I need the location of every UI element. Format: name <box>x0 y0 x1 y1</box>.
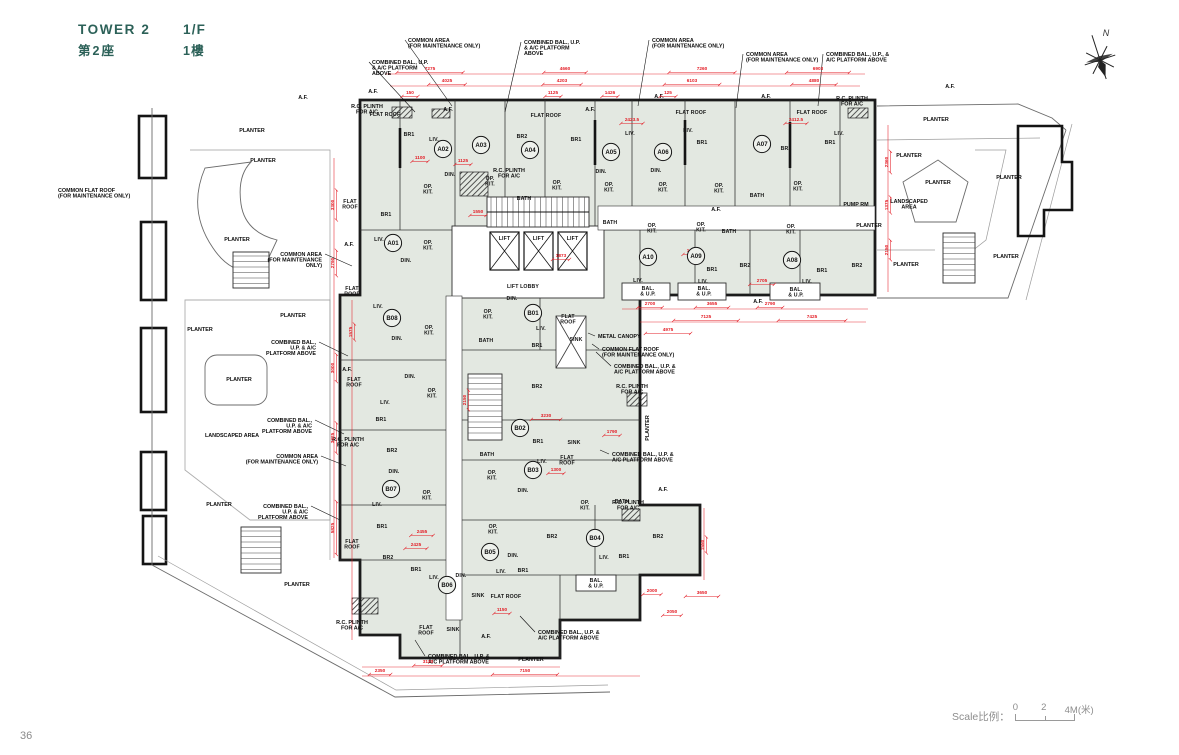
dimension: 150 <box>400 90 419 98</box>
room-label: FLATROOF <box>344 286 360 298</box>
annotation: METAL CANOPY <box>598 334 641 340</box>
room-label: BATH <box>479 338 494 344</box>
dimension-value: 3230 <box>541 413 552 418</box>
annotation: PLANTER <box>224 237 250 243</box>
room-label: DIN. <box>389 469 400 475</box>
unit-label: A02 <box>434 140 451 157</box>
unit-id: A04 <box>524 147 536 154</box>
annotation: COMBINED BAL., U.P. &A/C PLATFORM ABOVE <box>612 452 674 464</box>
room-label: BR1 <box>817 268 828 274</box>
lift-shaft: LIFT <box>490 232 519 270</box>
annotation: COMBINED BAL., U.P. &A/C PLATFORM ABOVE <box>428 654 490 666</box>
scale-label: Scale比例： <box>952 709 1010 724</box>
room-label: BATH <box>480 452 495 458</box>
room-label: DIN. <box>518 488 529 494</box>
dimension-value: 3300 <box>330 199 335 210</box>
room-label: DIN. <box>508 553 519 559</box>
room-label: BR1 <box>533 439 544 445</box>
room-label: SINK <box>568 440 581 446</box>
dimension: 3655 <box>694 301 730 309</box>
dimension-value: 7125 <box>701 314 712 319</box>
stairs <box>487 197 589 227</box>
dimension: 7150 <box>491 668 559 676</box>
unit-id: B04 <box>589 535 601 542</box>
annotation: A.F. <box>368 89 378 95</box>
unit-label: A04 <box>521 141 538 158</box>
dimension-value: 6103 <box>687 78 698 83</box>
unit-label: B02 <box>511 419 528 436</box>
room-label: DIN. <box>405 374 416 380</box>
annotation: PLANTER <box>250 158 276 164</box>
dimension-value: 1575 <box>348 326 353 337</box>
dimension: 2050 <box>661 609 683 617</box>
annotation: COMMON AREA(FOR MAINTENANCE ONLY) <box>246 454 318 466</box>
dimension-value: 2423.5 <box>625 117 640 122</box>
annotation: A.F. <box>711 207 721 213</box>
room-label: OP.KIT. <box>696 222 706 234</box>
room-label: BR2 <box>781 146 792 152</box>
scale-bracket <box>1015 714 1075 721</box>
room-label: BR1 <box>532 343 543 349</box>
room-label: BAL.& U.P. <box>588 578 604 590</box>
room-label: OP.KIT. <box>580 500 590 512</box>
room-label: BR2 <box>517 134 528 140</box>
annotation: A.F. <box>658 487 668 493</box>
dimension-value: 3325 <box>330 432 335 443</box>
lift-label: LIFT <box>499 236 511 242</box>
annotation: COMBINED BAL., U.P. &A/C PLATFORM ABOVE <box>614 364 676 376</box>
room-label: FLAT ROOF <box>797 110 828 116</box>
annotation: A.F. <box>585 107 595 113</box>
dimension-value: 3655 <box>707 301 718 306</box>
dimension-value: 2000 <box>647 588 658 593</box>
unit-id: A08 <box>786 257 798 264</box>
unit-label: A06 <box>654 143 671 160</box>
unit-id: A05 <box>605 149 617 156</box>
unit-id: A01 <box>387 240 399 247</box>
unit-label: A05 <box>602 143 619 160</box>
dimension-value: 150 <box>406 90 414 95</box>
annotation: PLANTER <box>996 175 1022 181</box>
room-label: BR1 <box>707 267 718 273</box>
unit-label: A01 <box>384 234 401 251</box>
annotation: PLANTER <box>280 313 306 319</box>
annotation: A.F. <box>945 84 955 90</box>
annotation: PLANTER <box>206 502 232 508</box>
unit-id: A02 <box>437 146 449 153</box>
dimension-value: 1790 <box>607 429 618 434</box>
dimension-value: 2050 <box>667 609 678 614</box>
annotation: LANDSCAPEDAREA <box>890 199 928 211</box>
dimension-value: 2425 <box>411 542 422 547</box>
annotation: PLANTER <box>239 128 265 134</box>
room-label: DIN. <box>651 168 662 174</box>
dimension-value: 1125 <box>548 90 559 95</box>
dimension-value: 2360 <box>884 156 889 167</box>
room-label: BR1 <box>619 554 630 560</box>
unit-label: B08 <box>383 309 400 326</box>
lift-label: LIFT <box>533 236 545 242</box>
dimension: 2000 <box>641 588 662 596</box>
room-label: BAL.& U.P. <box>640 286 656 298</box>
room-label: LIV. <box>380 400 390 406</box>
unit-label: B03 <box>524 461 541 478</box>
annotation: COMBINED BAL., U.P. &A/C PLATFORM ABOVE <box>538 630 600 642</box>
room-label: BAL.& U.P. <box>696 286 712 298</box>
dimension-value: 2700 <box>645 301 656 306</box>
room-label: DIN. <box>456 573 467 579</box>
unit-label: A07 <box>753 135 770 152</box>
annotation: COMBINED BAL.,U.P. & A/CPLATFORM ABOVE <box>266 340 317 357</box>
annotation: COMBINED BAL., U.P.& A/C PLATFORMABOVE <box>524 40 581 57</box>
room-label: OP.KIT. <box>423 184 433 196</box>
room-label: DIN. <box>401 258 412 264</box>
annotation: COMBINED BAL.,U.P. & A/CPLATFORM ABOVE <box>262 418 313 435</box>
room-label: DIN. <box>507 296 518 302</box>
unit-id: B07 <box>385 486 397 493</box>
room-label: BR1 <box>381 212 392 218</box>
unit-id: B08 <box>386 315 398 322</box>
stairs <box>468 374 502 440</box>
unit-label: A08 <box>783 251 800 268</box>
annotation: A.F. <box>481 634 491 640</box>
scale-ruler: 0 2 4M(米) <box>1015 702 1073 724</box>
room-label: BR2 <box>532 384 543 390</box>
dimension-value: 5825 <box>330 522 335 533</box>
unit-id: A10 <box>642 254 654 261</box>
unit-id: A06 <box>657 149 669 156</box>
unit-id: B02 <box>514 425 526 432</box>
annotation: PLANTER <box>226 377 252 383</box>
dimension: 1125 <box>543 90 562 98</box>
room-label: FLATROOF <box>346 377 362 389</box>
room-label: LIV. <box>625 131 635 137</box>
dimension-value: 6903 <box>813 66 824 71</box>
room-label: FLATROOF <box>342 199 358 211</box>
dimension: 3650 <box>684 590 720 598</box>
title-block: TOWER 2 1/F 第2座 1樓 <box>78 22 206 59</box>
annotation: PLANTER <box>645 415 651 441</box>
dimension-value: 2412.5 <box>789 117 804 122</box>
annotation: COMMON AREA(FOR MAINTENANCE ONLY) <box>652 38 724 50</box>
annotation: COMBINED BAL., U.P., &A/C PLATFORM ABOVE <box>826 52 889 64</box>
room-label: BR1 <box>825 140 836 146</box>
room-label: SINK <box>472 593 485 599</box>
annotation: PLANTER <box>896 153 922 159</box>
unit-label: A03 <box>472 136 489 153</box>
room-label: SINK <box>570 337 583 343</box>
dimension: 4880 <box>790 78 838 86</box>
dimension: 7425 <box>777 314 848 322</box>
dimension: 4203 <box>541 78 582 86</box>
annotation: A.F. <box>443 107 453 113</box>
unit-id: A03 <box>475 142 487 149</box>
room-label: BR1 <box>697 140 708 146</box>
room-label: BAL.& U.P. <box>788 287 804 299</box>
dimension-value: 1100 <box>415 155 426 160</box>
dimension-value: 2790 <box>765 301 776 306</box>
tower-title-en: TOWER 2 <box>78 22 183 37</box>
unit-id: B01 <box>527 310 539 317</box>
floor-plan: LIFTLIFTLIFTLIFT LOBBYBR1LIV.DIN.OP.KIT.… <box>0 0 1179 755</box>
room-label: BATH <box>750 193 765 199</box>
dimension-value: 1150 <box>497 607 508 612</box>
dimension-value: 1125 <box>458 158 469 163</box>
room-label: BR1 <box>411 567 422 573</box>
room-label: OP.KIT. <box>793 181 803 193</box>
room-label: FLATROOF <box>560 314 576 326</box>
annotation: PUMP RM <box>843 202 869 208</box>
dimension-value: 1550 <box>473 209 484 214</box>
unit-label: B04 <box>586 529 603 546</box>
room-label: LIV. <box>633 278 643 284</box>
dimension: 6903 <box>785 66 851 74</box>
stairs <box>241 527 281 573</box>
room-label: OP.KIT. <box>485 176 495 188</box>
unit-label: B05 <box>481 543 498 560</box>
room-label: BR2 <box>852 263 863 269</box>
annotation: PLANTER <box>925 180 951 186</box>
dimension-value: 2790 <box>330 257 335 268</box>
dimension-value: 7275 <box>425 66 436 71</box>
unit-label: A09 <box>687 247 704 264</box>
dimension-value: 3000 <box>330 362 335 373</box>
dimension: 1426 <box>600 90 619 98</box>
room-label: LIV. <box>429 575 439 581</box>
annotation: PLANTER <box>893 262 919 268</box>
annotation: A.F. <box>342 367 352 373</box>
dimension-value: 4660 <box>560 66 571 71</box>
room-label: FLATROOF <box>344 539 360 551</box>
scale-tick-2: 2 <box>1041 702 1046 713</box>
north-label: N <box>1103 28 1110 38</box>
room-label: DIN. <box>596 169 607 175</box>
annotation-leader <box>638 40 649 106</box>
unit-id: B06 <box>441 582 453 589</box>
annotation: COMMON FLAT ROOF(FOR MAINTENANCE ONLY) <box>602 347 674 359</box>
dimension-value: 4203 <box>557 78 568 83</box>
annotation: PLANTER <box>993 254 1019 260</box>
unit-label: B07 <box>382 480 399 497</box>
dimension: 7260 <box>667 66 736 74</box>
unit-id: B05 <box>484 549 496 556</box>
room-label: DIN. <box>445 172 456 178</box>
room-label: OP.KIT. <box>786 224 796 236</box>
room-label: FLAT ROOF <box>491 594 522 600</box>
dimension-value: 1426 <box>605 90 616 95</box>
dimension-value: 2705 <box>757 278 768 283</box>
annotation: A.F. <box>344 242 354 248</box>
room-label: OP.KIT. <box>552 180 562 192</box>
room-label: OP.KIT. <box>427 388 437 400</box>
dimension-value: 4975 <box>663 327 674 332</box>
scale-tick-0: 0 <box>1013 702 1018 713</box>
unit-label: B06 <box>438 576 455 593</box>
lift-lobby-label: LIFT LOBBY <box>507 284 539 290</box>
room-label: LIV. <box>374 237 384 243</box>
dimension: 7125 <box>672 314 740 322</box>
lift-label: LIFT <box>567 236 579 242</box>
room-label: BR2 <box>653 534 664 540</box>
dimension-value: 2150 <box>884 244 889 255</box>
annotation: COMMON FLAT ROOF(FOR MAINTENANCE ONLY) <box>58 188 130 200</box>
dimension-value: 125 <box>664 90 672 95</box>
room-label: BR2 <box>383 555 394 561</box>
dimension-value: 2150 <box>462 394 467 405</box>
room-label: BR2 <box>740 263 751 269</box>
annotation: COMBINED BAL.,U.P. & A/CPLATFORM ABOVE <box>258 504 309 521</box>
annotation: LANDSCAPED AREA <box>205 433 259 439</box>
room-label: BATH <box>603 220 618 226</box>
dimension-value: 7425 <box>807 314 818 319</box>
annotation: PLANTER <box>856 223 882 229</box>
room-label: OP.KIT. <box>604 182 614 194</box>
annotation: COMMON AREA(FOR MAINTENANCEONLY) <box>267 252 322 269</box>
annotation: PLANTER <box>187 327 213 333</box>
scale-bar: Scale比例： 0 2 4M(米) <box>952 702 1073 724</box>
room-label: LIV. <box>834 131 844 137</box>
unit-label: B01 <box>524 304 541 321</box>
room-label: OP.KIT. <box>487 470 497 482</box>
dimension-value: 7150 <box>520 668 531 673</box>
room-label: BR1 <box>377 524 388 530</box>
annotation-leader <box>311 506 340 520</box>
dimension-value: 1375 <box>884 199 889 210</box>
room-label: OP.KIT. <box>423 240 433 252</box>
unit-label: A10 <box>639 248 656 265</box>
room-label: OP.KIT. <box>422 490 432 502</box>
room-label: FLAT ROOF <box>676 110 707 116</box>
room-label: LIV. <box>683 128 693 134</box>
room-label: OP.KIT. <box>488 524 498 536</box>
tower-title-zh: 第2座 <box>78 40 183 59</box>
room-label: BATH <box>517 196 532 202</box>
room-label: BR1 <box>404 132 415 138</box>
room-label: BATH <box>722 229 737 235</box>
room-label: OP.KIT. <box>483 309 493 321</box>
annotation: PLANTER <box>923 117 949 123</box>
room-label: BR2 <box>547 534 558 540</box>
dimension: 4660 <box>542 66 588 74</box>
annotation: COMMON AREA(FOR MAINTENANCE ONLY) <box>746 52 818 64</box>
dimension-value: 3650 <box>697 590 708 595</box>
stairs <box>233 252 269 288</box>
floor-title-en: 1/F <box>183 22 206 37</box>
room-label: LIV. <box>496 569 506 575</box>
room-label: BR1 <box>376 417 387 423</box>
dimension-value: 3120 <box>423 659 434 664</box>
annotation: A.F. <box>298 95 308 101</box>
floor-title-zh: 1樓 <box>183 40 205 59</box>
dimension-value: 2455 <box>417 529 428 534</box>
room-label: OP.KIT. <box>424 325 434 337</box>
dimension-value: 4880 <box>809 78 820 83</box>
room-label: LIV. <box>372 502 382 508</box>
page-number: 36 <box>20 730 32 742</box>
dimension-value: 1873 <box>556 253 567 258</box>
room-label: OP.KIT. <box>714 183 724 195</box>
annotation: PLANTER <box>518 657 544 663</box>
unit-id: B03 <box>527 467 539 474</box>
room-label: LIV. <box>802 279 812 285</box>
room-label: LIV. <box>536 326 546 332</box>
dimension-value: 1300 <box>551 467 562 472</box>
room-label: OP.KIT. <box>658 182 668 194</box>
dimension-value: 2350 <box>375 668 386 673</box>
annotation: A.F. <box>753 299 763 305</box>
north-compass <box>1077 30 1122 84</box>
annotation-leader <box>405 40 452 106</box>
room-label: BR2 <box>387 448 398 454</box>
room-label: BR1 <box>571 137 582 143</box>
dimension: 6103 <box>663 78 722 86</box>
annotation: COMMON AREA(FOR MAINTENANCE ONLY) <box>408 38 480 50</box>
room-label: LIV. <box>599 555 609 561</box>
stairs <box>943 233 975 283</box>
room-label: SINK <box>447 627 460 633</box>
lift-shaft: LIFT <box>558 232 587 270</box>
dimension: 2350 <box>368 668 393 676</box>
dimension-value: 4025 <box>442 78 453 83</box>
dimension-value: 1550 <box>700 539 705 550</box>
room-label: FLATROOF <box>418 625 434 637</box>
unit-id: A09 <box>690 253 702 260</box>
room-label: LIV. <box>698 279 708 285</box>
unit-id: A07 <box>756 141 768 148</box>
lift-shaft: LIFT <box>524 232 553 270</box>
room-label: FLAT ROOF <box>531 113 562 119</box>
room-label: LIV. <box>373 304 383 310</box>
annotation: A.F. <box>761 94 771 100</box>
brochure-page: TOWER 2 1/F 第2座 1樓 <box>0 0 1179 755</box>
room-label: DIN. <box>392 336 403 342</box>
room-label: OP.KIT. <box>647 223 657 235</box>
dimension-value: 7260 <box>697 66 708 71</box>
room-label: FLATROOF <box>559 455 575 467</box>
annotation: PLANTER <box>284 582 310 588</box>
dimension: 4975 <box>644 327 692 335</box>
room-label: BR1 <box>518 568 529 574</box>
